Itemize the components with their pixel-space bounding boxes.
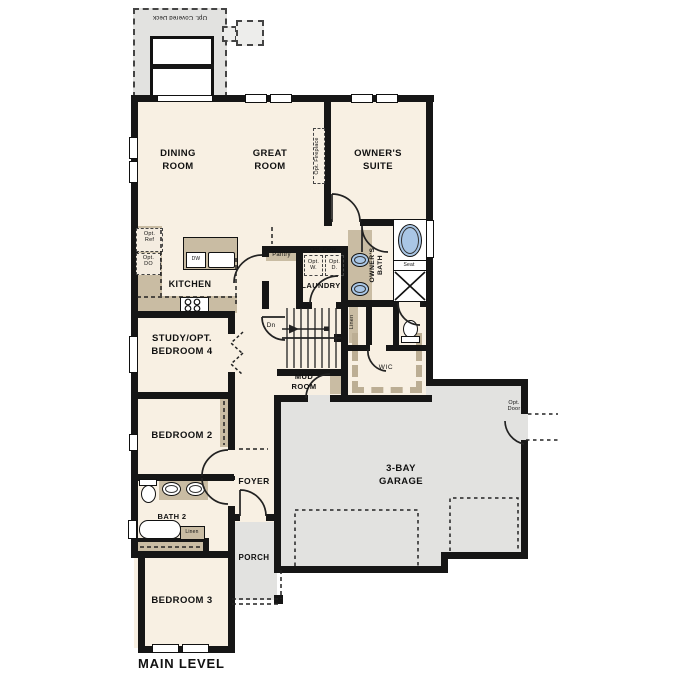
opt-dryer: Opt.D. bbox=[325, 255, 344, 276]
wall-foyer-bottom-a bbox=[228, 514, 240, 521]
floor-middle bbox=[134, 400, 277, 522]
floor-plan: Opt. Covered Deck bbox=[0, 0, 687, 687]
foyer-label: FOYER bbox=[230, 476, 278, 487]
mud-room-label: MUDROOM bbox=[281, 372, 327, 392]
window bbox=[129, 161, 138, 183]
pantry-label: Pantry bbox=[265, 252, 298, 259]
owners-bath-label: OWNER'SBATH bbox=[369, 233, 391, 297]
vanity-sink bbox=[351, 282, 369, 296]
wall-garage-bottom-right bbox=[441, 552, 528, 559]
bath2-toilet-bowl bbox=[141, 485, 156, 503]
opt-deck-box bbox=[236, 20, 264, 46]
owner-tub-basin bbox=[398, 224, 422, 257]
page-title: MAIN LEVEL bbox=[138, 655, 268, 673]
bath2-label: BATH 2 bbox=[144, 512, 200, 522]
dishwasher: DW bbox=[186, 252, 206, 268]
opt-door-path bbox=[526, 414, 560, 440]
wall-suite-left bbox=[324, 98, 331, 226]
deck-stairs-landing bbox=[150, 64, 214, 69]
wall-bed3-top bbox=[131, 551, 234, 558]
kitchen-label: KITCHEN bbox=[152, 278, 228, 290]
wall-wic-top-a bbox=[346, 345, 370, 351]
wall-mid-a bbox=[228, 311, 235, 334]
opt-cabs-label: Opt. Cabs bbox=[301, 247, 345, 253]
study-label: STUDY/OPT.BEDROOM 4 bbox=[134, 333, 230, 359]
seat-label: Seat bbox=[394, 263, 424, 269]
window bbox=[152, 644, 179, 653]
porch-step-block bbox=[274, 595, 283, 604]
wall-wic-top-b bbox=[386, 345, 426, 351]
vanity-sink bbox=[351, 253, 369, 267]
opt-washer: Opt.W. bbox=[304, 255, 323, 276]
wall-garage-right-b bbox=[521, 440, 528, 559]
opt-refrigerator: Opt.Ref bbox=[136, 228, 163, 252]
owner-linen-label: Linen bbox=[349, 304, 359, 340]
wall-suite-bottom-a bbox=[324, 219, 332, 226]
deck-slider-door bbox=[157, 95, 213, 102]
wall-mid-c bbox=[228, 506, 235, 653]
linen-label: Linen bbox=[181, 530, 203, 536]
bath2-linen: Linen bbox=[180, 526, 205, 540]
window bbox=[245, 94, 267, 103]
opt-double-oven: Opt.DO bbox=[136, 253, 161, 275]
wall-linen-right bbox=[366, 300, 372, 345]
opt-ref-label: Opt.Ref bbox=[138, 231, 161, 244]
dining-room-label: DININGROOM bbox=[140, 148, 216, 174]
wall-bed2-top bbox=[131, 392, 235, 399]
deck-label: Opt. Covered Deck bbox=[136, 11, 224, 20]
range bbox=[180, 297, 209, 312]
porch-label: PORCH bbox=[230, 553, 278, 564]
dishwasher-label: DW bbox=[187, 257, 205, 263]
wall-study-top bbox=[131, 311, 235, 318]
window bbox=[270, 94, 292, 103]
wall-pantry-left-b bbox=[262, 281, 269, 309]
wall-garage-top-b bbox=[330, 395, 432, 402]
owner-shower bbox=[393, 270, 427, 302]
wall-garage-top2 bbox=[426, 379, 528, 386]
wic-label: WIC bbox=[368, 364, 404, 371]
vanity-sink bbox=[186, 482, 205, 496]
garage-label: 3-BAYGARAGE bbox=[356, 463, 446, 489]
opt-door-label: Opt.Door bbox=[498, 400, 530, 413]
window bbox=[128, 520, 137, 539]
wall-laundry-bottom-a bbox=[296, 302, 312, 309]
owners-suite-label: OWNER'SSUITE bbox=[334, 148, 422, 174]
opt-do-label: Opt.DO bbox=[138, 255, 159, 268]
opt-dryer-label: Opt.D. bbox=[327, 259, 342, 272]
opt-fireplace-label: Opt. Fireplace bbox=[314, 131, 324, 181]
owner-toilet-tank bbox=[401, 336, 420, 343]
great-room-label: GREATROOM bbox=[232, 148, 308, 174]
kitchen-sink bbox=[208, 252, 235, 268]
opt-washer-label: Opt.W. bbox=[306, 259, 321, 272]
wall-toilet-left bbox=[393, 300, 399, 350]
window bbox=[182, 644, 209, 653]
window bbox=[351, 94, 373, 103]
opt-deck-stub bbox=[222, 26, 237, 42]
vanity-sink bbox=[162, 482, 181, 496]
dn-label: Dn bbox=[263, 322, 279, 329]
window bbox=[129, 137, 138, 159]
wall-garage-bottom bbox=[274, 566, 448, 573]
bedroom2-label: BEDROOM 2 bbox=[134, 430, 230, 443]
stair-newel bbox=[334, 334, 342, 342]
mudroom-bench bbox=[330, 374, 341, 394]
bath2-tub bbox=[139, 520, 181, 539]
laundry-label: LAUNDRY bbox=[297, 281, 345, 291]
bedroom3-label: BEDROOM 3 bbox=[136, 595, 228, 608]
window bbox=[376, 94, 398, 103]
